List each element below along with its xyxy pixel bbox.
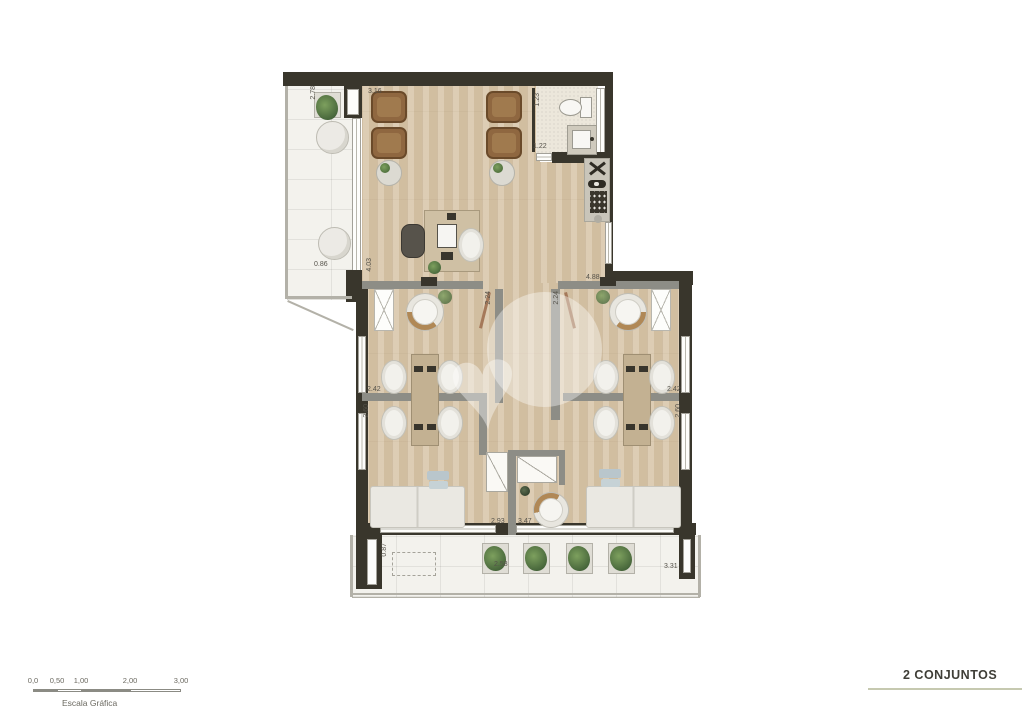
dim-balcony-top-width: 0.86	[314, 261, 328, 269]
railing-balcony-top-left	[285, 86, 288, 298]
dim-bath-width: 1.23	[534, 93, 542, 107]
planter-2	[523, 543, 550, 574]
desk-phone	[441, 252, 453, 260]
shaft-inset	[347, 89, 359, 115]
window-right-front	[681, 336, 690, 393]
plant-icon	[316, 95, 338, 120]
scale-tick-0: 0,0	[28, 676, 38, 685]
wall-partition-left-stub	[479, 393, 487, 455]
dim-back-room-right: 2.60	[675, 404, 683, 418]
dim-entry-right: 2.24	[553, 291, 561, 305]
desk-chair	[381, 360, 407, 394]
closet-left	[486, 452, 508, 492]
plant-icon	[610, 546, 632, 571]
dim-reception-width: 3.16	[368, 88, 382, 96]
railing-balcony-bottom-left	[350, 535, 353, 597]
plan-title: 2 CONJUNTOS	[903, 668, 997, 682]
desk-chair	[593, 406, 619, 440]
plant-icon	[525, 546, 547, 571]
armchair-3	[486, 91, 522, 123]
dim-balcony-bottom-mid: 2.58	[494, 561, 508, 569]
dim-closet-right: 3.47	[518, 518, 532, 526]
window-right-mid	[605, 222, 612, 264]
dim-closet-left: 2.93	[491, 518, 505, 526]
wall-tv-left	[421, 277, 437, 286]
flower-icon-right	[596, 290, 610, 304]
scale-tick-3: 3,00	[174, 676, 189, 685]
door-bathroom	[536, 153, 552, 161]
pillow	[429, 481, 448, 489]
pillow	[601, 479, 620, 487]
armchair-2	[371, 127, 407, 159]
scale-bar: 0,0 0,50 1,00 2,00 3,00 Escala Gráfica	[0, 660, 260, 720]
flower-icon-bottom	[520, 486, 530, 496]
pod-seat	[535, 494, 568, 527]
title-rule	[868, 688, 1022, 690]
desk-chair	[593, 360, 619, 394]
closet-right	[517, 456, 557, 483]
planter-3	[566, 543, 593, 574]
dim-front-room-left: 2.42	[367, 386, 381, 394]
bench-left	[370, 486, 465, 528]
lounge-chair-1	[316, 121, 349, 154]
faucet-icon	[590, 137, 594, 141]
wall-closet-right	[559, 450, 565, 485]
cabinet-left-office	[374, 289, 394, 331]
cabinet-right-office	[651, 289, 671, 331]
monitor-icon	[414, 424, 423, 430]
scale-segment	[81, 689, 131, 692]
desk-chair	[437, 360, 463, 394]
window-left-back	[358, 413, 366, 470]
plant-icon	[380, 163, 390, 173]
desk-laptop	[437, 224, 457, 248]
armchair-cushion	[492, 133, 516, 153]
dim-reception-depth: 4.03	[366, 258, 374, 272]
desk-chair	[649, 406, 675, 440]
pod-chair-left	[406, 293, 444, 331]
dim-balcony-bottom-right: 3.31	[664, 563, 678, 571]
monitor-icon	[626, 366, 635, 372]
wall-partition-right	[563, 393, 679, 401]
monitor-icon	[639, 424, 648, 430]
window-left-front	[358, 336, 366, 393]
scale-segment	[130, 689, 181, 692]
dim-balcony-bottom-depth: 0.87	[381, 543, 389, 557]
wall-closet-center	[508, 450, 516, 535]
pod-seat	[615, 299, 641, 325]
railing-balcony-top-bottom	[285, 296, 352, 299]
wall-corridor-left	[495, 289, 503, 403]
scale-tick-1: 1,00	[74, 676, 89, 685]
toilet-bowl	[559, 99, 582, 116]
wall-right-bath	[605, 86, 613, 164]
armchair-cushion	[492, 97, 516, 117]
wall-top	[283, 72, 613, 86]
scale-tick-2: 2,00	[123, 676, 138, 685]
window-bathroom	[596, 88, 605, 154]
side-table-1	[376, 160, 402, 186]
railing-balcony-bottom-right	[698, 535, 701, 597]
wall-corridor-right	[551, 289, 560, 420]
desk-chair	[381, 406, 407, 440]
planter-top	[314, 92, 341, 118]
railing-balcony-bottom-outer	[352, 593, 700, 595]
dim-entry-left: 2.24	[485, 291, 493, 305]
dim-offices-width: 4.88	[586, 274, 600, 282]
monitor-icon	[639, 366, 648, 372]
window-balcony-right	[683, 539, 691, 573]
armchair-cushion	[377, 97, 401, 117]
dim-bath-door: 1.22	[533, 143, 547, 151]
pod-seat	[412, 299, 438, 325]
window-right-back	[681, 413, 690, 470]
monitor-icon	[427, 366, 436, 372]
intercom-keypad-icon	[590, 191, 607, 213]
monitor-icon	[626, 424, 635, 430]
desk-chair	[437, 406, 463, 440]
monitor-icon	[414, 366, 423, 372]
edge-diagonal	[287, 300, 353, 331]
planter-4	[608, 543, 635, 574]
guest-chair	[458, 228, 484, 262]
armchair-cushion	[377, 133, 401, 153]
pillow	[599, 469, 621, 478]
wall-divider-right	[558, 281, 679, 289]
scale-tick-05: 0,50	[50, 676, 65, 685]
plant-icon	[568, 546, 590, 571]
office-chair	[401, 224, 425, 258]
floor-plan-canvas: ♥ 3.16 2.78 1.23 1.22 0.86 4.03 4.88 2.2…	[0, 0, 1024, 724]
desk-plant-icon	[428, 261, 441, 274]
bench-dashed-outline	[392, 552, 436, 576]
desk-accessory	[447, 213, 456, 220]
handle-dot	[594, 182, 599, 186]
lounge-chair-2	[318, 227, 351, 260]
armchair-4	[486, 127, 522, 159]
utility-knob-icon	[594, 215, 602, 223]
dim-back-room-left: 2.60	[363, 404, 371, 418]
plant-icon	[493, 163, 503, 173]
wall-tv-right	[600, 277, 616, 286]
window-balcony-top	[352, 118, 361, 276]
dim-front-room-right: 2.42	[667, 386, 681, 394]
scale-segment	[33, 689, 58, 692]
dim-balcony-top-depth: 2.78	[310, 86, 318, 100]
sink	[572, 130, 591, 149]
window-balcony-left	[367, 539, 377, 585]
planter-1	[482, 543, 509, 574]
railing-balcony-bottom-outer2	[352, 597, 700, 598]
side-table-2	[489, 160, 515, 186]
scale-label: Escala Gráfica	[62, 698, 117, 708]
pillow	[427, 471, 449, 480]
monitor-icon	[427, 424, 436, 430]
pod-chair-right	[609, 293, 647, 331]
bench-right	[586, 486, 681, 528]
scale-segment	[57, 689, 82, 692]
